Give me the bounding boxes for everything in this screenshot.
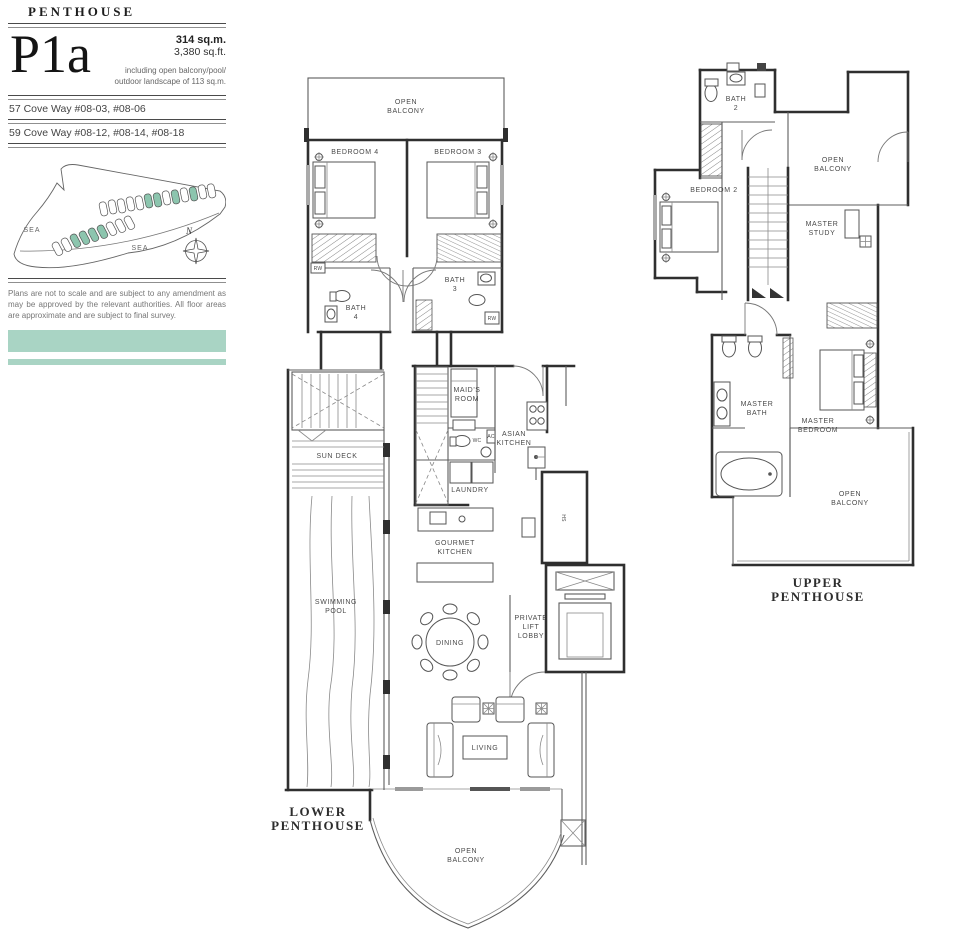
lower-penthouse-plan: OPEN BALCONY BEDROOM 4 BEDROOM 3: [271, 78, 624, 928]
lamp-icon: [314, 152, 324, 162]
bedroom3-bed: [427, 152, 498, 229]
room-label-dining: DINING: [436, 640, 464, 647]
private-lift-lobby: PRIVATE LIFT LOBBY: [510, 595, 548, 707]
bath2-door-arc: [742, 130, 772, 160]
upper-plan-title: UPPER: [793, 575, 844, 590]
room-label-bath3: BATH: [445, 277, 466, 284]
sun-deck: SUN DECK: [292, 441, 384, 488]
room-label-asian-kitchen: ASIAN: [502, 431, 526, 438]
room-label-master-bedroom: MASTER: [802, 418, 835, 425]
svg-text:LIFT: LIFT: [523, 624, 540, 631]
floor-plans: OPEN BALCONY BEDROOM 4 BEDROOM 3: [0, 0, 978, 934]
master-wardrobe: [827, 303, 877, 328]
lower-internal-stairs: [416, 367, 448, 505]
master-bedroom: MASTER BEDROOM: [798, 303, 877, 434]
lamp-icon: [314, 219, 324, 229]
upper-open-balcony-top: OPEN BALCONY: [814, 132, 908, 173]
lower-open-balcony-bottom: OPEN BALCONY: [370, 818, 564, 928]
lamp-icon: [865, 339, 875, 349]
room-label-private-lift-lobby: PRIVATE: [514, 615, 547, 622]
svg-text:BALCONY: BALCONY: [814, 166, 852, 173]
svg-text:BALCONY: BALCONY: [387, 108, 425, 115]
living-set: LIVING: [427, 697, 554, 777]
master-study: MASTER STUDY: [806, 210, 871, 247]
room-label-bedroom4: BEDROOM 4: [331, 149, 378, 156]
room-label-wc: WC: [473, 438, 482, 444]
bedroom3-wardrobe: [437, 234, 501, 262]
room-label-swimming-pool: SWIMMING: [315, 599, 357, 606]
household-shelter: HS: [542, 472, 587, 563]
svg-text:3: 3: [453, 286, 458, 293]
lower-plan-title: LOWER: [289, 804, 346, 819]
room-label-gourmet-kitchen: GOURMET: [435, 540, 475, 547]
gourmet-kitchen: GOURMET KITCHEN: [417, 508, 535, 582]
bath3: BATH 3 RW: [416, 272, 499, 330]
svg-text:PENTHOUSE: PENTHOUSE: [271, 818, 365, 833]
label-rw-left: RW: [314, 266, 323, 272]
svg-text:STUDY: STUDY: [809, 230, 836, 237]
right-boundary-wall: [561, 672, 586, 865]
plant-icon: [536, 703, 547, 714]
room-label-maids-room: MAID'S: [453, 387, 480, 394]
upper-penthouse-plan: BATH 2 BEDROOM 2: [653, 63, 913, 604]
hall-cabinet: [522, 518, 535, 537]
maids-room: MAID'S ROOM: [451, 369, 481, 430]
svg-text:BALCONY: BALCONY: [831, 500, 869, 507]
dining-set: DINING: [412, 604, 488, 680]
bath2-wardrobe: [701, 124, 722, 176]
bedroom4-bed: [313, 152, 375, 229]
bedroom2: BEDROOM 2: [660, 187, 738, 263]
lamp-icon: [860, 236, 871, 247]
lower-open-balcony-top: OPEN BALCONY: [304, 78, 508, 142]
room-label-master-study: MASTER: [806, 221, 839, 228]
svg-text:BATH: BATH: [747, 410, 768, 417]
laundry: LAUNDRY: [450, 462, 493, 494]
stove-icon: [527, 402, 547, 430]
svg-text:4: 4: [354, 314, 359, 321]
room-label-bath2: BATH: [726, 96, 747, 103]
lamp-icon: [865, 415, 875, 425]
room-label-master-bath: MASTER: [741, 401, 774, 408]
svg-text:BALCONY: BALCONY: [447, 857, 485, 864]
lift-shaft: [546, 565, 624, 672]
bath4: BATH 4 RW: [311, 263, 366, 322]
room-label-open-balcony-bottom: OPEN: [455, 848, 477, 855]
upper-internal-stairs: [748, 168, 788, 300]
entrance-door-arc: [513, 366, 543, 396]
plant-icon: [483, 703, 494, 714]
svg-text:ROOM: ROOM: [455, 396, 479, 403]
svg-text:POOL: POOL: [325, 608, 347, 615]
maids-wc: WC AC: [450, 430, 495, 457]
bath-door-arcs: [371, 256, 437, 302]
swimming-pool: SWIMMING POOL: [306, 496, 374, 787]
svg-text:KITCHEN: KITCHEN: [438, 549, 473, 556]
bathtub-icon: [716, 452, 782, 496]
room-label-bedroom3: BEDROOM 3: [434, 149, 481, 156]
lamp-icon: [488, 219, 498, 229]
room-label-bath4: BATH: [346, 305, 367, 312]
room-label-sun-deck: SUN DECK: [317, 453, 358, 460]
room-label-hs: HS: [560, 514, 566, 522]
sink-icon: [528, 447, 545, 468]
label-rw-right: RW: [488, 316, 497, 322]
svg-text:KITCHEN: KITCHEN: [497, 440, 532, 447]
svg-text:LOBBY: LOBBY: [518, 633, 544, 640]
bedroom4-wardrobe: [312, 234, 376, 262]
pool-column: SUN DECK SWIMMING POOL: [288, 370, 390, 790]
room-label-upper-balcony-bottom: OPEN: [839, 491, 861, 498]
lamp-icon: [488, 152, 498, 162]
room-label-open-balcony-top: OPEN: [395, 99, 417, 106]
bath2: BATH 2: [705, 72, 765, 112]
asian-kitchen: ASIAN KITCHEN: [497, 402, 547, 480]
label-ac: AC: [487, 434, 495, 440]
room-label-living: LIVING: [472, 745, 499, 752]
room-label-laundry: LAUNDRY: [451, 487, 489, 494]
pool-deck-stairs: [292, 372, 384, 441]
svg-text:2: 2: [734, 105, 739, 112]
floor-plan-page: { "header": { "category": "PENTHOUSE", "…: [0, 0, 978, 934]
svg-text:PENTHOUSE: PENTHOUSE: [771, 589, 865, 604]
lamp-icon: [661, 253, 671, 263]
master-bath: MASTER BATH: [712, 303, 793, 497]
room-label-bedroom2: BEDROOM 2: [690, 187, 737, 194]
lamp-icon: [661, 192, 671, 202]
room-label-upper-balcony-top: OPEN: [822, 157, 844, 164]
